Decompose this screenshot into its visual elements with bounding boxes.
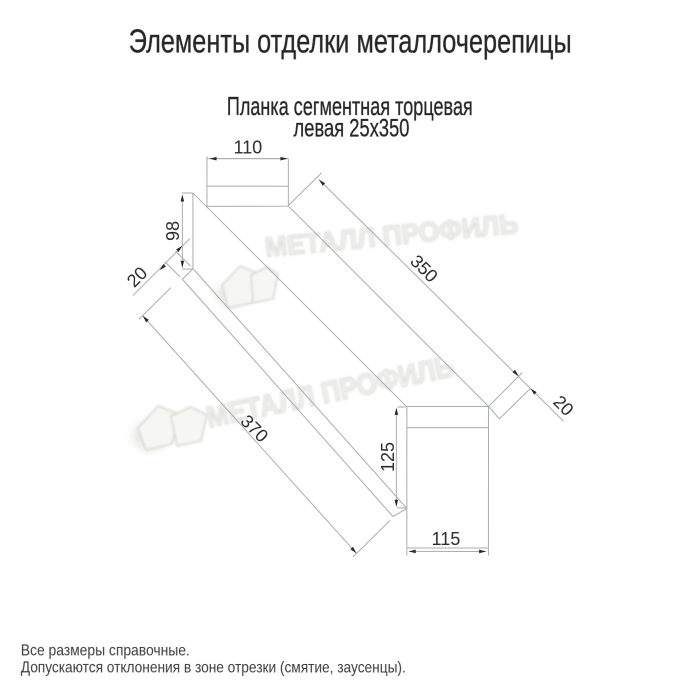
svg-text:115: 115: [432, 529, 461, 549]
svg-text:98: 98: [163, 221, 183, 241]
svg-text:МЕТАЛЛ ПРОФИЛЬ: МЕТАЛЛ ПРОФИЛЬ: [264, 208, 520, 263]
svg-text:20: 20: [123, 263, 151, 291]
svg-text:350: 350: [406, 251, 441, 286]
svg-text:110: 110: [234, 137, 263, 157]
svg-text:Все размеры справочные.: Все размеры справочные.: [21, 642, 190, 659]
svg-text:левая 25х350: левая 25х350: [293, 114, 409, 142]
svg-text:Элементы отделки металлочерепи: Элементы отделки металлочерепицы: [129, 22, 572, 59]
svg-text:125: 125: [378, 442, 398, 472]
svg-text:20: 20: [549, 392, 577, 420]
svg-text:Допускаются отклонения в зоне: Допускаются отклонения в зоне отрезки (с…: [21, 659, 406, 676]
